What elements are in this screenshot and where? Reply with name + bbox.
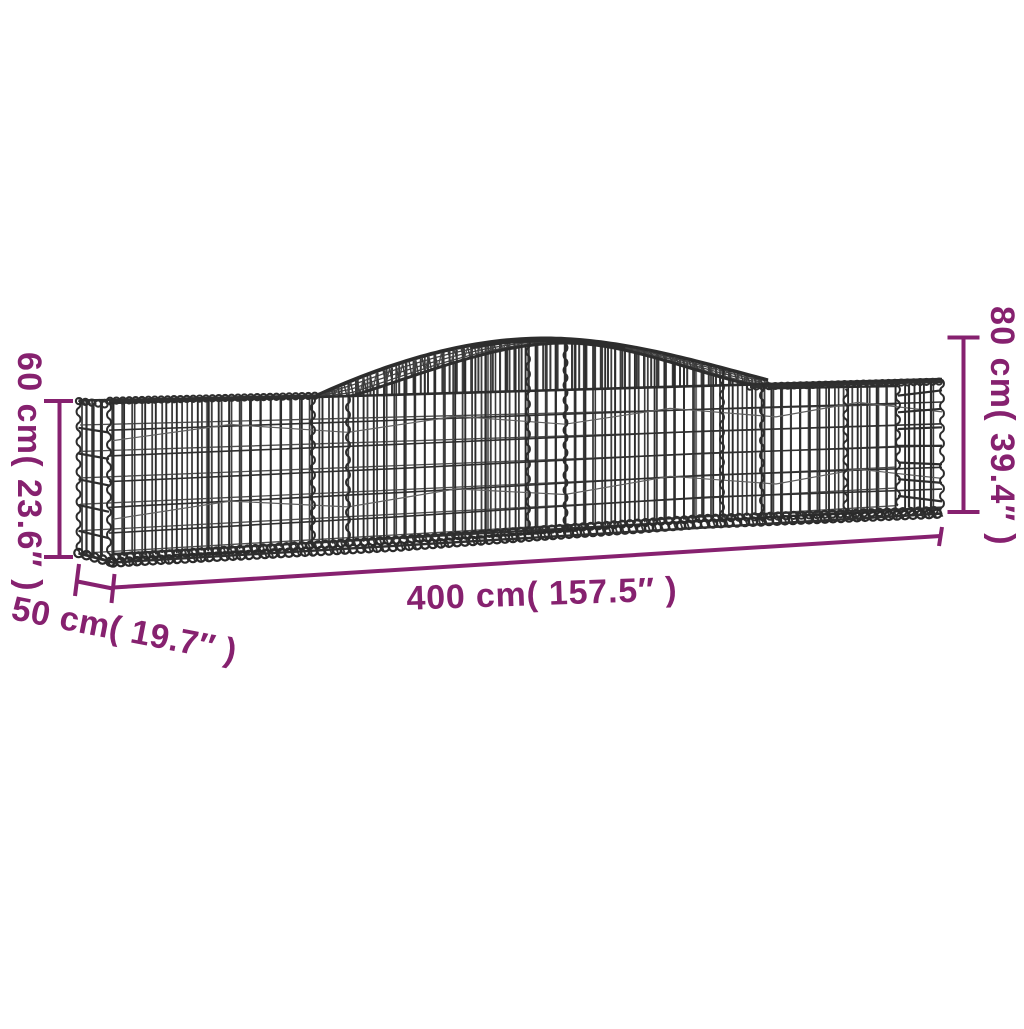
- svg-text:60 cm( 23.6″ ): 60 cm( 23.6″ ): [10, 352, 48, 592]
- svg-text:80 cm( 39.4″ ): 80 cm( 39.4″ ): [983, 306, 1021, 546]
